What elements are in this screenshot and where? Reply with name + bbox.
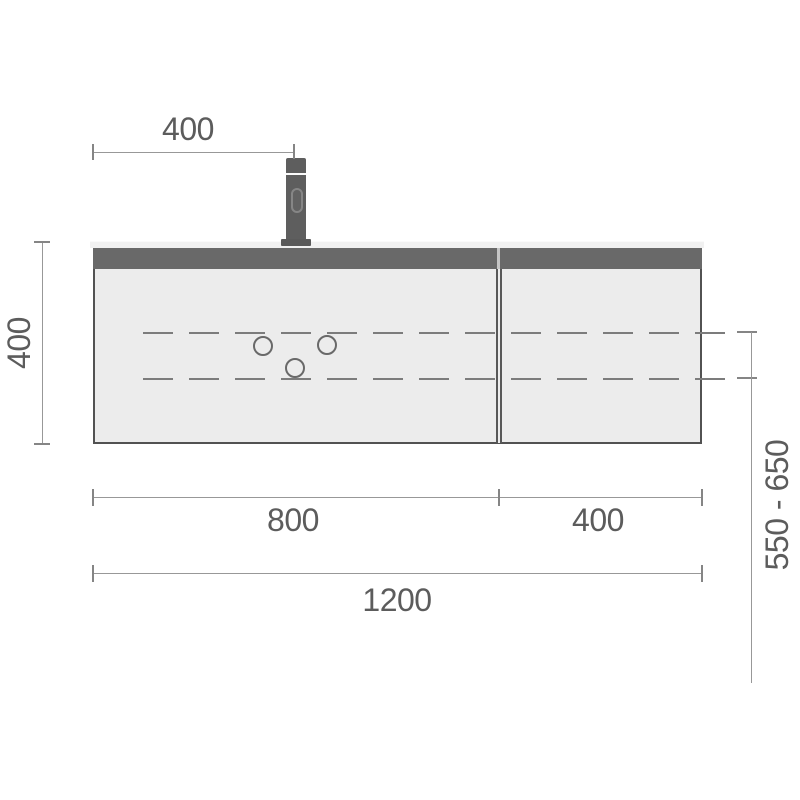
dim-tick (92, 565, 94, 582)
dim-tick (92, 144, 94, 160)
mounting-line-top (143, 332, 726, 334)
drill-hole-icon (253, 336, 273, 356)
faucet-handle (291, 188, 303, 213)
dim-left-section-label: 800 (267, 504, 319, 536)
vanity-countertop (90, 241, 704, 248)
dim-tick (701, 489, 703, 506)
vanity-cabinet-body (93, 269, 702, 444)
dim-tick (701, 565, 703, 582)
dim-right-section-label: 400 (572, 504, 624, 536)
drill-hole-icon (317, 335, 337, 355)
dim-faucet-offset-label: 400 (162, 113, 214, 145)
door-divider (496, 269, 502, 443)
dim-tick (92, 489, 94, 506)
dim-tick (737, 377, 757, 379)
dim-tick (498, 489, 500, 506)
mounting-line-bottom (143, 378, 726, 380)
dim-tick (34, 443, 50, 445)
vanity-top-band (93, 248, 702, 269)
drill-hole-icon (285, 358, 305, 378)
vanity-top-band-gap (497, 248, 500, 269)
dim-total-width-line (93, 573, 702, 574)
dim-mounting-height-line (751, 332, 752, 683)
technical-drawing: 400 400 550 - 650 800 400 1200 (0, 0, 800, 800)
dim-mounting-height-label: 550 - 650 (761, 440, 793, 571)
dim-total-width-label: 1200 (362, 584, 431, 616)
dim-tick (293, 144, 295, 159)
faucet-cap-line (286, 173, 306, 175)
dim-tick (34, 241, 50, 243)
dim-cabinet-height-line (42, 242, 43, 445)
dim-faucet-offset-line (93, 152, 295, 153)
dim-tick (737, 331, 757, 333)
dim-cabinet-height-label: 400 (3, 317, 35, 369)
dim-sections-line (93, 497, 702, 498)
faucet-base (281, 239, 311, 246)
